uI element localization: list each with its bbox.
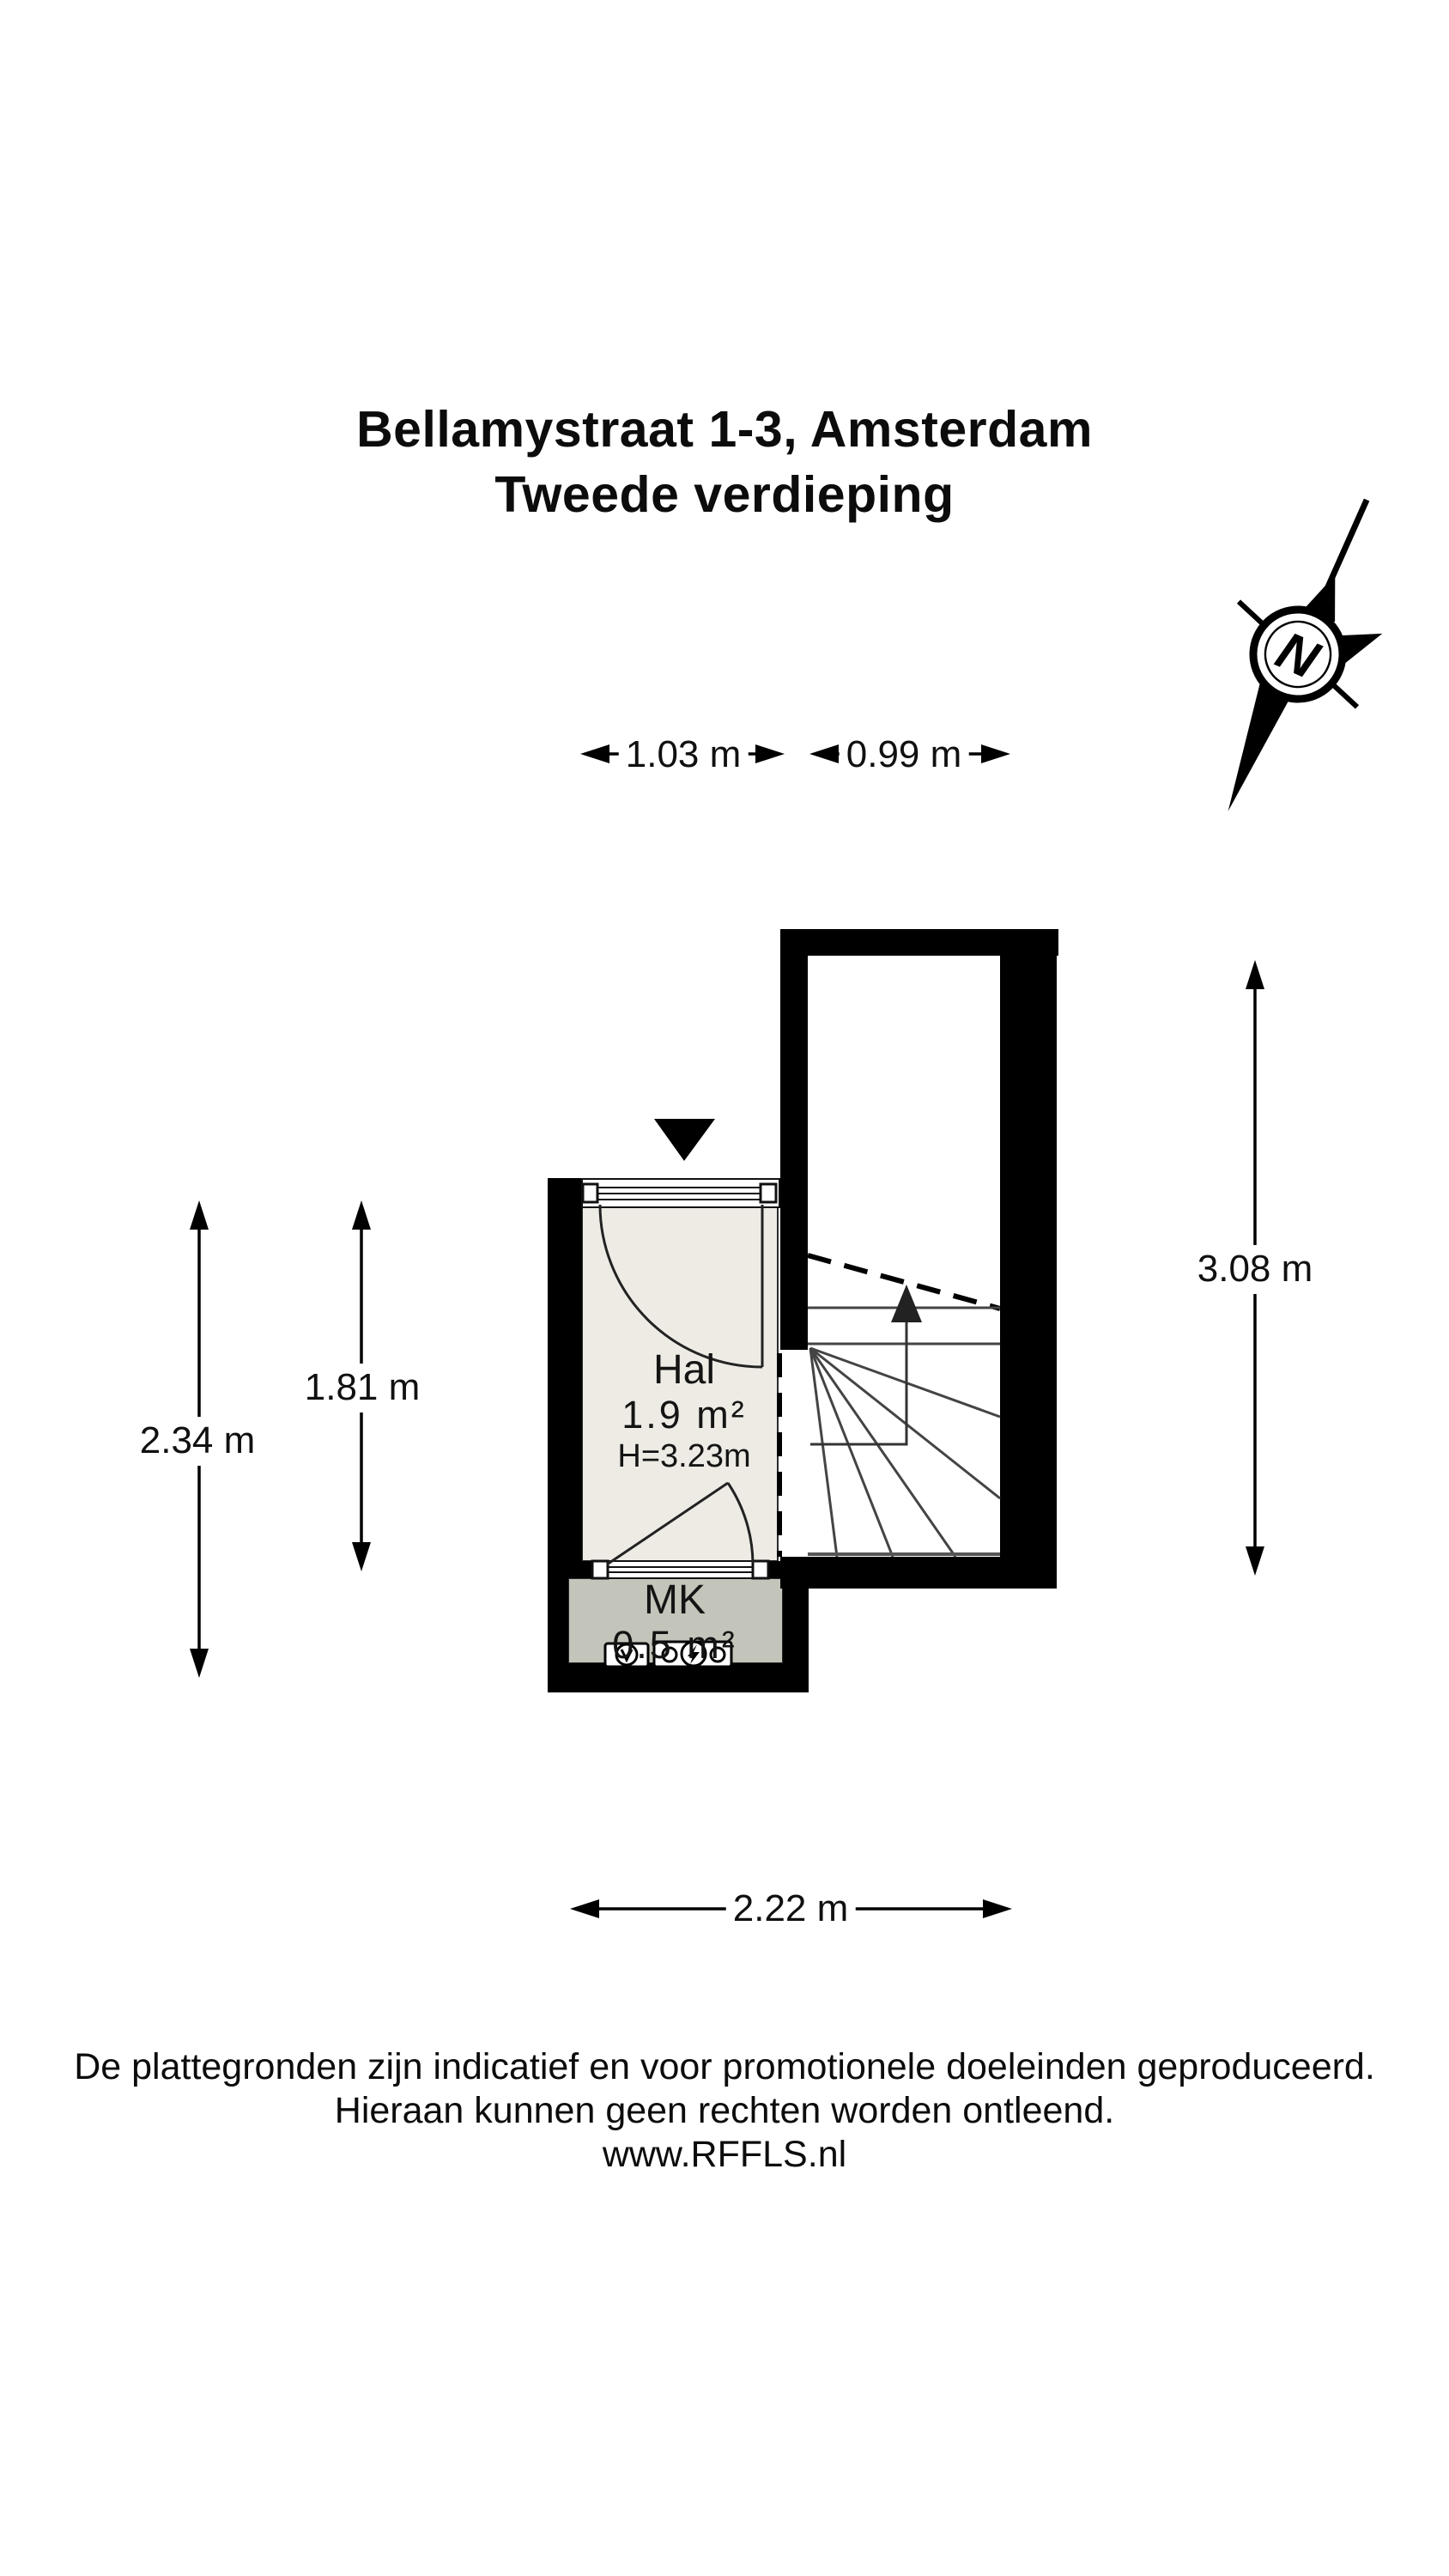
window-frame xyxy=(592,1561,768,1578)
disclaimer-website: www.RFFLS.nl xyxy=(0,2133,1449,2177)
hal-bottom-window xyxy=(592,1561,768,1578)
room-name: Hal xyxy=(617,1348,750,1393)
dim-label-bottom: 2.22 m xyxy=(726,1887,856,1930)
stairwell-bottom-wall xyxy=(780,1557,1057,1589)
staircase xyxy=(808,1255,1000,1557)
page-title: Bellamystraat 1-3, Amsterdam Tweede verd… xyxy=(0,397,1449,527)
title-floor: Tweede verdieping xyxy=(0,462,1449,527)
stairwell-right-wall xyxy=(1000,929,1057,1589)
hal-bottom-left-corner xyxy=(568,1561,592,1578)
room-area: 0.5 m² xyxy=(612,1623,737,1668)
stair-treads xyxy=(808,1308,1000,1557)
floorplan-page: N Bellamystraat 1-3, Amsterdam Tweede ve… xyxy=(0,0,1449,2576)
entrance-arrow-icon xyxy=(654,1119,715,1161)
door-jamb xyxy=(761,1184,776,1202)
dim-label-top-left: 1.03 m xyxy=(619,733,749,776)
room-name: MK xyxy=(612,1578,737,1623)
disclaimer-line-1: De plattegronden zijn indicatief en voor… xyxy=(0,2045,1449,2089)
room-ceiling-height: H=3.23m xyxy=(617,1437,750,1475)
stair-up-arrow-icon xyxy=(891,1285,922,1322)
dim-label-right: 3.08 m xyxy=(1191,1248,1320,1291)
disclaimer: De plattegronden zijn indicatief en voor… xyxy=(0,2045,1449,2177)
stairwell-left-wall xyxy=(780,929,808,1350)
dim-label-left-outer: 2.34 m xyxy=(133,1419,263,1462)
hal-top-window xyxy=(582,1179,779,1207)
dim-label-left-inner: 1.81 m xyxy=(298,1366,427,1409)
disclaimer-line-2: Hieraan kunnen geen rechten worden ontle… xyxy=(0,2089,1449,2133)
mk-room-label: MK 0.5 m² xyxy=(612,1578,737,1668)
door-jamb xyxy=(592,1561,608,1578)
hal-left-wall xyxy=(548,1178,582,1563)
hal-room-label: Hal 1.9 m² H=3.23m xyxy=(617,1348,750,1475)
door-jamb xyxy=(583,1184,597,1202)
room-area: 1.9 m² xyxy=(617,1393,750,1437)
dim-label-top-right: 0.99 m xyxy=(840,733,969,776)
door-jamb xyxy=(753,1561,768,1578)
title-address: Bellamystraat 1-3, Amsterdam xyxy=(0,397,1449,462)
